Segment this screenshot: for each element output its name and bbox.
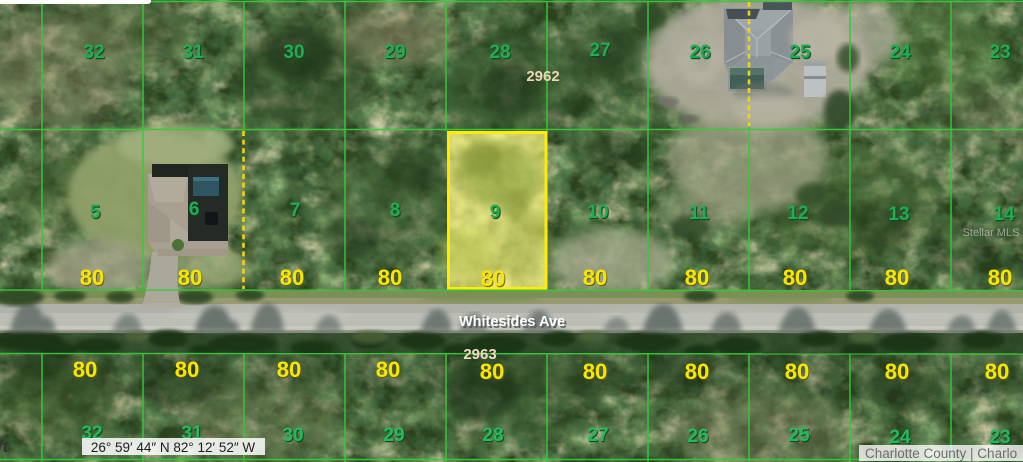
svg-text:80: 80 — [73, 357, 97, 382]
svg-text:26: 26 — [689, 42, 710, 63]
svg-text:80: 80 — [583, 265, 607, 290]
svg-text:Stellar MLS: Stellar MLS — [963, 227, 1020, 239]
svg-text:7: 7 — [290, 200, 301, 221]
svg-text:10: 10 — [587, 202, 608, 223]
svg-text:Charlotte County | Charlo: Charlotte County | Charlo — [865, 446, 1017, 461]
svg-text:2962: 2962 — [526, 68, 559, 85]
svg-text:2963: 2963 — [463, 346, 496, 363]
svg-text:6: 6 — [189, 199, 200, 220]
svg-text:26: 26 — [687, 426, 708, 447]
svg-text:28: 28 — [489, 42, 510, 63]
svg-text:12: 12 — [787, 203, 808, 224]
svg-text:ft: ft — [0, 437, 10, 456]
svg-text:80: 80 — [280, 265, 304, 290]
svg-text:28: 28 — [482, 425, 503, 446]
svg-text:24: 24 — [889, 427, 911, 448]
svg-text:80: 80 — [685, 265, 709, 290]
svg-text:30: 30 — [283, 42, 304, 63]
svg-text:80: 80 — [178, 265, 202, 290]
svg-text:80: 80 — [277, 357, 301, 382]
svg-text:11: 11 — [689, 203, 710, 224]
svg-text:80: 80 — [583, 359, 607, 384]
svg-text:Whitesides Ave: Whitesides Ave — [459, 314, 565, 330]
svg-text:80: 80 — [376, 357, 400, 382]
svg-text:80: 80 — [885, 265, 909, 290]
svg-text:31: 31 — [182, 42, 204, 63]
svg-text:29: 29 — [384, 42, 405, 63]
svg-text:27: 27 — [587, 425, 608, 446]
svg-text:30: 30 — [282, 425, 303, 446]
svg-text:26° 59′ 44″ N 82° 12′ 52″ W: 26° 59′ 44″ N 82° 12′ 52″ W — [91, 440, 256, 455]
svg-text:24: 24 — [889, 42, 911, 63]
svg-text:80: 80 — [685, 359, 709, 384]
svg-text:80: 80 — [80, 265, 104, 290]
svg-text:25: 25 — [789, 42, 811, 63]
svg-text:13: 13 — [888, 204, 909, 225]
svg-text:23: 23 — [989, 42, 1010, 63]
svg-text:29: 29 — [383, 425, 404, 446]
svg-text:80: 80 — [783, 265, 807, 290]
svg-text:5: 5 — [90, 202, 101, 223]
svg-text:80: 80 — [988, 265, 1012, 290]
svg-text:80: 80 — [985, 359, 1009, 384]
svg-text:23: 23 — [989, 427, 1010, 448]
svg-text:80: 80 — [175, 357, 199, 382]
svg-text:25: 25 — [788, 425, 810, 446]
svg-text:80: 80 — [885, 359, 909, 384]
svg-text:27: 27 — [589, 40, 610, 61]
svg-text:80: 80 — [785, 359, 809, 384]
svg-text:80: 80 — [378, 265, 402, 290]
svg-text:80: 80 — [481, 266, 505, 291]
svg-text:14: 14 — [993, 204, 1015, 225]
svg-text:8: 8 — [390, 200, 401, 221]
svg-text:32: 32 — [83, 42, 104, 63]
svg-text:9: 9 — [490, 202, 501, 223]
